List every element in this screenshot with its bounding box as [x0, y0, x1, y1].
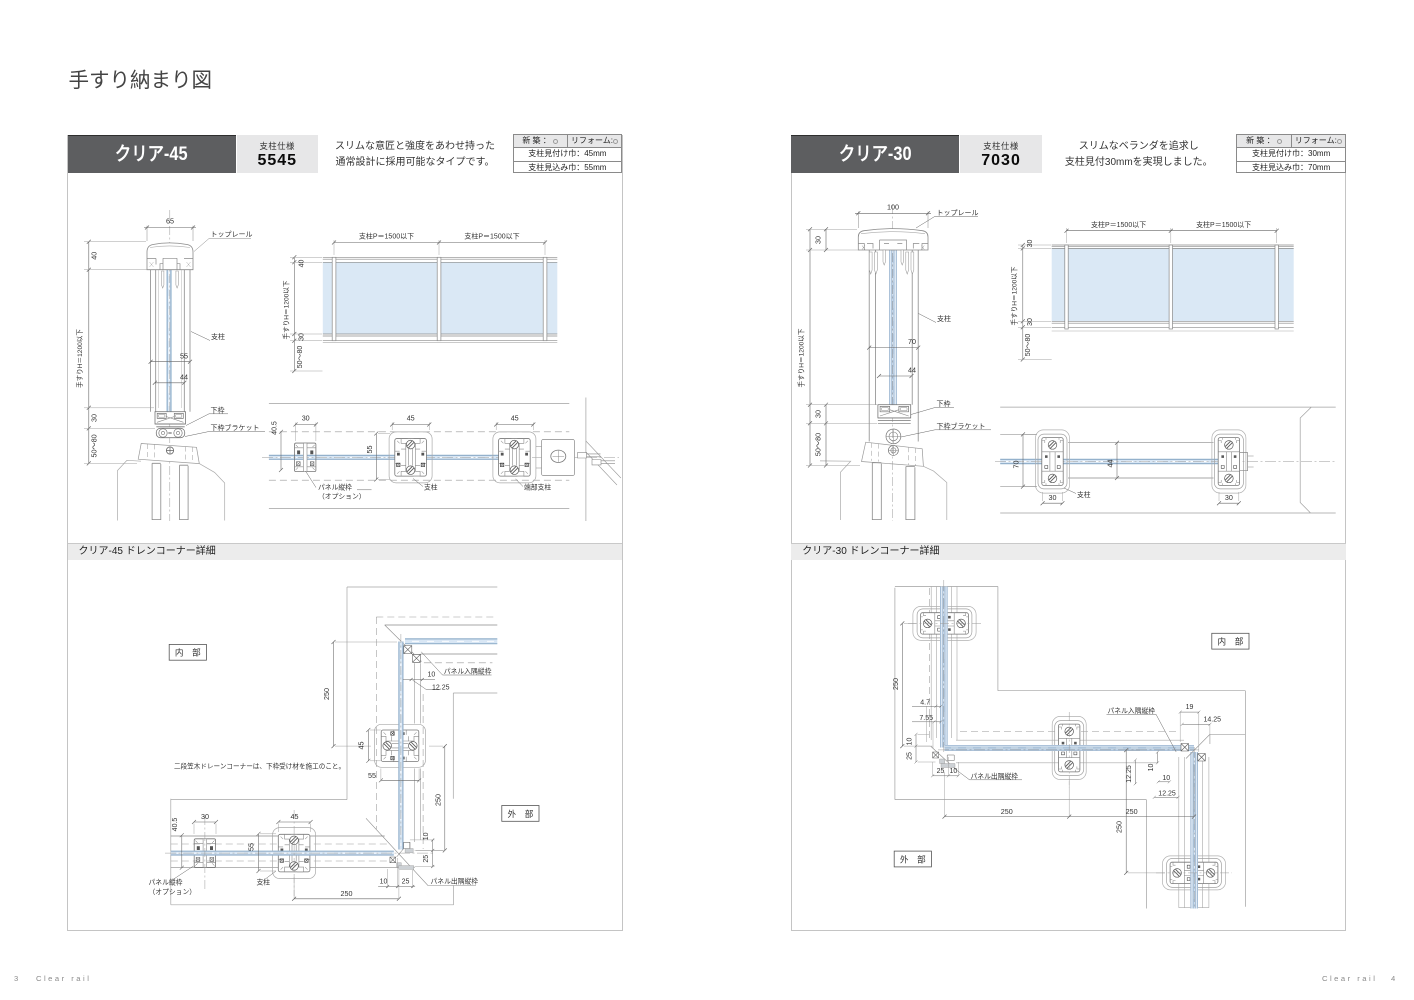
svg-text:45: 45 [357, 742, 366, 750]
svg-text:支柱P＝1500以下: 支柱P＝1500以下 [1091, 220, 1146, 229]
svg-text:下枠ブラケット: 下枠ブラケット [211, 423, 260, 432]
svg-text:下枠ブラケット: 下枠ブラケット [937, 421, 986, 430]
svg-text:7.55: 7.55 [919, 715, 933, 722]
svg-text:支柱: 支柱 [424, 483, 438, 492]
svg-text:25: 25 [402, 879, 410, 886]
svg-text:10: 10 [907, 738, 914, 746]
svg-text:12.25: 12.25 [1158, 791, 1176, 798]
svg-text:55: 55 [365, 446, 374, 454]
svg-text:下枠: 下枠 [211, 405, 225, 414]
svg-text:50～80: 50～80 [90, 434, 99, 457]
svg-text:内 部: 内 部 [1218, 636, 1244, 647]
svg-text:支柱P＝1500以下: 支柱P＝1500以下 [464, 232, 519, 241]
svg-text:支柱: 支柱 [937, 314, 951, 323]
svg-text:4.7: 4.7 [920, 699, 930, 706]
svg-text:手すりH＝1200以下: 手すりH＝1200以下 [797, 328, 806, 387]
svg-text:パネル出隅縦枠: パネル出隅縦枠 [431, 876, 479, 885]
svg-text:40.5: 40.5 [172, 818, 179, 832]
svg-text:支柱: 支柱 [257, 878, 271, 887]
svg-text:55: 55 [247, 843, 256, 851]
svg-text:30: 30 [1027, 240, 1034, 248]
svg-text:パネル縦枠: パネル縦枠 [318, 483, 352, 492]
svg-text:45: 45 [511, 414, 519, 423]
svg-text:12.25: 12.25 [432, 685, 450, 692]
svg-text:100: 100 [887, 203, 899, 212]
svg-text:50～80: 50～80 [297, 346, 304, 369]
svg-text:（オプション）: （オプション） [318, 493, 366, 501]
svg-text:30: 30 [1225, 493, 1233, 502]
svg-text:パネル入隅縦枠: パネル入隅縦枠 [1108, 706, 1156, 715]
svg-text:パネル出隅縦枠: パネル出隅縦枠 [971, 771, 1019, 780]
svg-text:25: 25 [907, 752, 914, 760]
svg-text:250: 250 [1115, 821, 1124, 833]
svg-text:手すりH＝1200以下: 手すりH＝1200以下 [75, 329, 84, 388]
svg-text:55: 55 [368, 771, 376, 780]
svg-text:30: 30 [299, 333, 306, 341]
svg-text:12.25: 12.25 [1126, 765, 1133, 783]
svg-text:25: 25 [937, 768, 945, 775]
svg-text:65: 65 [166, 217, 174, 226]
svg-text:10: 10 [950, 768, 958, 775]
svg-text:45: 45 [291, 812, 299, 821]
svg-text:端部支柱: 端部支柱 [524, 483, 551, 492]
svg-text:支柱P＝1500以下: 支柱P＝1500以下 [359, 232, 414, 241]
svg-text:10: 10 [380, 879, 388, 886]
svg-text:40.5: 40.5 [272, 421, 279, 435]
svg-text:二段笠木ドレーンコーナーは、下枠受け材を施工のこと。: 二段笠木ドレーンコーナーは、下枠受け材を施工のこと。 [174, 762, 345, 771]
svg-text:30: 30 [302, 414, 310, 423]
svg-text:（オプション）: （オプション） [149, 888, 197, 896]
svg-text:30: 30 [814, 410, 823, 418]
svg-text:30: 30 [1027, 318, 1034, 326]
svg-text:14.25: 14.25 [1204, 716, 1222, 723]
svg-text:250: 250 [1126, 807, 1138, 816]
svg-text:手すりH＝1200以下: 手すりH＝1200以下 [282, 280, 291, 339]
svg-text:250: 250 [891, 678, 900, 690]
svg-text:トップレール: トップレール [937, 209, 979, 217]
svg-text:70: 70 [908, 337, 916, 346]
svg-text:支柱: 支柱 [1077, 490, 1091, 499]
svg-text:内 部: 内 部 [175, 647, 201, 658]
svg-text:44: 44 [908, 366, 916, 375]
svg-text:パネル入隅縦枠: パネル入隅縦枠 [444, 667, 492, 676]
svg-text:10: 10 [423, 832, 430, 840]
svg-text:支柱: 支柱 [211, 332, 225, 341]
svg-text:外 部: 外 部 [508, 808, 534, 819]
svg-text:250: 250 [322, 688, 331, 700]
svg-text:250: 250 [1001, 807, 1013, 816]
svg-text:40: 40 [299, 260, 306, 268]
svg-text:外 部: 外 部 [900, 853, 926, 864]
svg-text:50～80: 50～80 [814, 433, 823, 456]
svg-text:下枠: 下枠 [937, 399, 951, 408]
svg-text:10: 10 [1148, 764, 1155, 772]
svg-text:70: 70 [1011, 461, 1020, 469]
svg-text:44: 44 [1105, 460, 1114, 468]
svg-text:30: 30 [1049, 493, 1057, 502]
svg-text:パネル縦枠: パネル縦枠 [149, 878, 183, 887]
svg-text:手すりH＝1200以下: 手すりH＝1200以下 [1010, 266, 1019, 325]
svg-text:10: 10 [428, 672, 436, 679]
svg-text:30: 30 [90, 414, 99, 422]
svg-text:25: 25 [423, 855, 430, 863]
svg-text:トップレール: トップレール [211, 230, 253, 238]
svg-text:55: 55 [180, 351, 188, 360]
svg-text:30: 30 [814, 236, 823, 244]
svg-text:19: 19 [1186, 704, 1194, 711]
svg-text:250: 250 [341, 889, 353, 898]
svg-text:支柱P＝1500以下: 支柱P＝1500以下 [1196, 220, 1251, 229]
svg-text:250: 250 [434, 794, 443, 806]
svg-text:50～80: 50～80 [1025, 334, 1032, 357]
svg-text:45: 45 [407, 414, 415, 423]
svg-text:40: 40 [90, 252, 99, 260]
svg-text:10: 10 [1162, 775, 1170, 782]
svg-text:44: 44 [180, 372, 188, 381]
